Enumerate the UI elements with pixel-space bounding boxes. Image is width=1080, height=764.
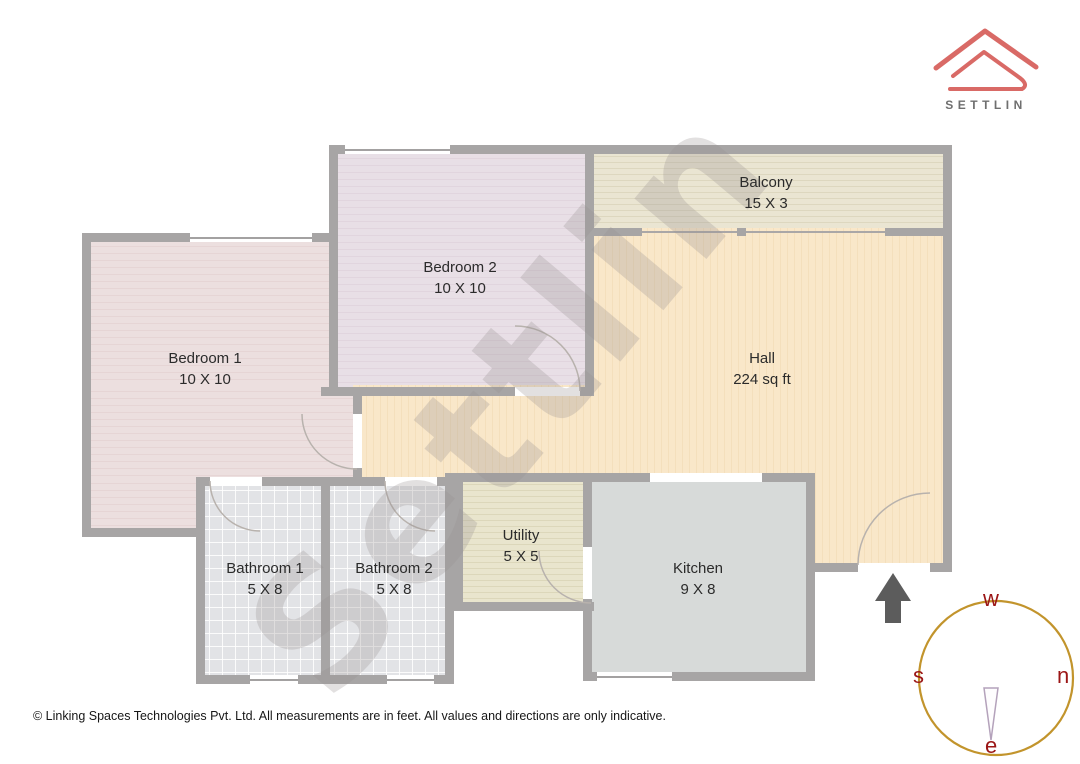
- room-dimensions: 5 X 5: [461, 546, 581, 567]
- room-label-balcony: Balcony 15 X 3: [686, 172, 846, 214]
- room-name: Utility: [461, 525, 581, 546]
- room-dimensions: 224 sq ft: [682, 369, 842, 390]
- room-name: Kitchen: [618, 558, 778, 579]
- room-label-bedroom2: Bedroom 2 10 X 10: [380, 257, 540, 299]
- room-name: Hall: [682, 348, 842, 369]
- room-name: Bedroom 1: [125, 348, 285, 369]
- room-dimensions: 10 X 10: [380, 278, 540, 299]
- floor-plan-page: Settlin Bedroom 1 10 X 10 Bedroom 2 10 X…: [0, 0, 1080, 764]
- room-name: Bedroom 2: [380, 257, 540, 278]
- room-label-bedroom1: Bedroom 1 10 X 10: [125, 348, 285, 390]
- room-label-utility: Utility 5 X 5: [461, 525, 581, 567]
- floor-plan: Settlin Bedroom 1 10 X 10 Bedroom 2 10 X…: [0, 0, 1080, 764]
- room-name: Balcony: [686, 172, 846, 193]
- room-dimensions: 5 X 8: [314, 579, 474, 600]
- room-dimensions: 9 X 8: [618, 579, 778, 600]
- room-label-bathroom2: Bathroom 2 5 X 8: [314, 558, 474, 600]
- room-name: Bathroom 2: [314, 558, 474, 579]
- room-dimensions: 15 X 3: [686, 193, 846, 214]
- room-label-hall: Hall 224 sq ft: [682, 348, 842, 390]
- room-dimensions: 10 X 10: [125, 369, 285, 390]
- room-label-kitchen: Kitchen 9 X 8: [618, 558, 778, 600]
- room-labels: Bedroom 1 10 X 10 Bedroom 2 10 X 10 Balc…: [0, 0, 1080, 764]
